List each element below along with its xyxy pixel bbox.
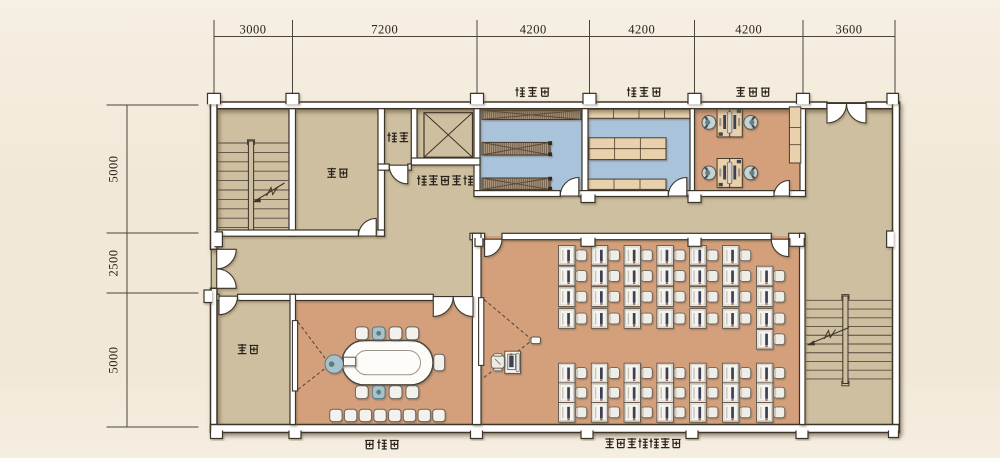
svg-text:4200: 4200 xyxy=(520,23,547,37)
svg-text:5000: 5000 xyxy=(107,156,121,183)
svg-text:5000: 5000 xyxy=(107,347,121,374)
svg-text:4200: 4200 xyxy=(735,23,762,37)
svg-text:7200: 7200 xyxy=(371,23,398,37)
svg-text:3600: 3600 xyxy=(836,23,863,37)
svg-text:4200: 4200 xyxy=(628,23,655,37)
svg-text:2500: 2500 xyxy=(107,250,121,277)
svg-text:3000: 3000 xyxy=(240,23,267,37)
